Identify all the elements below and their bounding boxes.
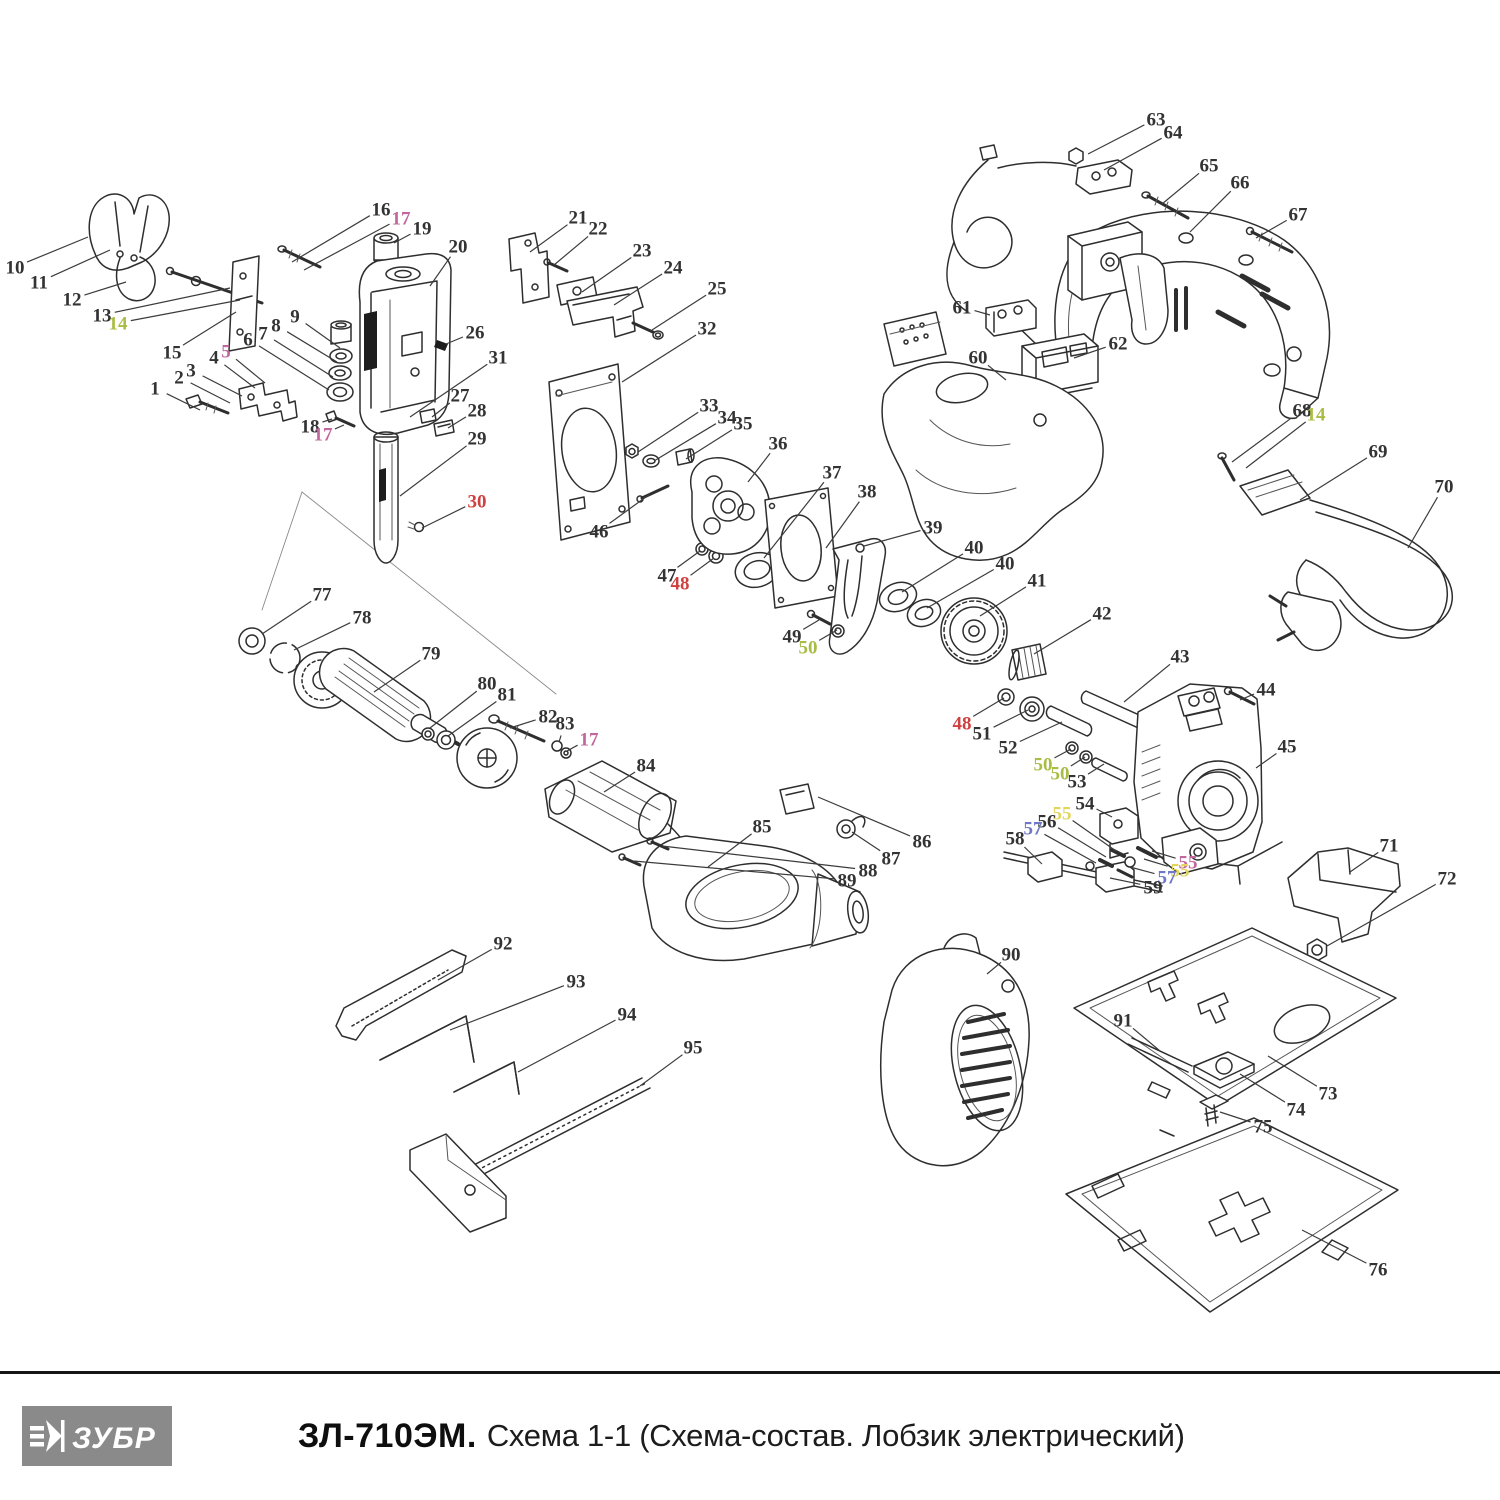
- part-label-71: 71: [1380, 836, 1399, 857]
- part-label-50: 50: [799, 638, 818, 659]
- leader-line-33: [638, 412, 698, 452]
- part-baffle-disc: [457, 728, 517, 788]
- footer-divider: [0, 1371, 1500, 1374]
- part-label-11: 11: [30, 273, 48, 294]
- leader-line-29: [400, 446, 467, 496]
- model-name: ЗЛ-710ЭМ.: [298, 1417, 477, 1456]
- zubr-logo-text: ЗУБР: [72, 1422, 156, 1455]
- part-gasket-32: [549, 364, 630, 540]
- leader-line-56: [1058, 828, 1106, 857]
- leader-line-47: [678, 551, 701, 567]
- leader-line-63: [1088, 125, 1144, 154]
- leader-line-69: [1300, 458, 1367, 500]
- part-label-16: 16: [372, 200, 391, 221]
- part-label-3: 3: [186, 361, 196, 382]
- part-label-23: 23: [633, 241, 652, 262]
- part-label-1: 1: [150, 379, 160, 400]
- part-connector-block: [884, 312, 946, 366]
- part-label-15: 15: [163, 343, 182, 364]
- part-label-14: 14: [1307, 405, 1327, 426]
- part-handle-66: [1055, 211, 1330, 418]
- leader-line-22: [554, 236, 588, 265]
- part-label-29: 29: [468, 429, 487, 450]
- part-label-2: 2: [174, 368, 184, 389]
- part-edge-guide-95: [410, 1078, 650, 1232]
- schema-title: ЗЛ-710ЭМ. Схема 1-1 (Схема-состав. Лобзи…: [298, 1406, 1185, 1466]
- part-label-8: 8: [271, 316, 281, 337]
- part-label-90: 90: [1002, 945, 1021, 966]
- part-label-44: 44: [1257, 680, 1277, 701]
- part-label-45: 45: [1278, 737, 1297, 758]
- part-screw-30: [408, 522, 424, 532]
- part-label-7: 7: [258, 324, 268, 345]
- leader-line-65: [1162, 173, 1199, 204]
- leader-line-35: [686, 430, 732, 459]
- part-label-88: 88: [859, 861, 878, 882]
- part-label-65: 65: [1200, 156, 1219, 177]
- leader-line-48: [691, 558, 715, 575]
- leader-line-17: [335, 425, 344, 429]
- part-pinion-42: [1007, 644, 1046, 681]
- part-label-5: 5: [221, 342, 231, 363]
- part-label-38: 38: [858, 482, 877, 503]
- part-label-81: 81: [498, 685, 517, 706]
- part-label-37: 37: [823, 463, 843, 484]
- part-label-48: 48: [671, 574, 690, 595]
- part-label-33: 33: [700, 396, 719, 417]
- part-label-92: 92: [494, 934, 513, 955]
- zubr-logo: ЗУБР: [22, 1406, 172, 1466]
- part-label-58: 58: [1006, 829, 1025, 850]
- exploded-parts-diagram: 1234567891011121314151617181719202122232…: [0, 0, 1500, 1372]
- part-label-48: 48: [953, 714, 972, 735]
- part-label-87: 87: [882, 849, 902, 870]
- leader-line-82: [510, 720, 536, 728]
- leader-line-48: [973, 698, 1004, 716]
- part-label-70: 70: [1435, 477, 1454, 498]
- part-label-89: 89: [838, 871, 857, 892]
- part-label-28: 28: [468, 401, 487, 422]
- leader-line-95: [640, 1055, 683, 1086]
- leader-line-42: [1034, 620, 1091, 654]
- part-label-76: 76: [1369, 1260, 1388, 1281]
- leader-line-30: [422, 507, 465, 528]
- part-label-74: 74: [1287, 1100, 1307, 1121]
- part-plunger-rod-29: [374, 432, 398, 563]
- leader-line-2: [191, 383, 230, 403]
- leader-line-32: [622, 335, 696, 382]
- part-label-46: 46: [590, 522, 609, 543]
- part-label-62: 62: [1109, 334, 1128, 355]
- part-support-71: [1288, 848, 1400, 961]
- leader-line-86: [818, 797, 910, 836]
- part-label-94: 94: [618, 1005, 638, 1026]
- part-label-75: 75: [1254, 1117, 1273, 1138]
- part-label-57: 57: [1024, 819, 1044, 840]
- leader-line-5: [236, 359, 265, 383]
- part-label-17: 17: [580, 730, 600, 751]
- zubr-logo-icon: ЗУБР: [24, 1410, 170, 1462]
- leader-line-83: [559, 735, 561, 742]
- part-label-17: 17: [392, 209, 412, 230]
- part-label-67: 67: [1289, 205, 1309, 226]
- leader-line-8: [287, 332, 337, 362]
- leader-line-52: [1020, 722, 1062, 742]
- part-bracket-21: [509, 233, 549, 303]
- leader-line-78: [294, 623, 350, 650]
- part-label-86: 86: [913, 832, 932, 853]
- leader-line-51: [994, 710, 1028, 727]
- part-gasket-38: [765, 488, 838, 608]
- part-label-24: 24: [664, 258, 684, 279]
- part-label-17: 17: [314, 425, 334, 446]
- part-nut-33: [626, 444, 694, 467]
- part-blade-holder: [89, 194, 169, 301]
- part-motor-housing-85: [643, 836, 870, 960]
- leader-line-49: [803, 620, 819, 629]
- part-label-64: 64: [1164, 123, 1184, 144]
- part-label-59: 59: [1144, 878, 1163, 899]
- part-counterweight-36: [691, 458, 770, 554]
- part-label-41: 41: [1028, 571, 1047, 592]
- part-label-9: 9: [290, 307, 300, 328]
- part-label-39: 39: [924, 518, 943, 539]
- part-label-25: 25: [708, 279, 727, 300]
- leader-line-77: [262, 601, 311, 634]
- leader-line-7: [274, 340, 333, 377]
- part-label-19: 19: [413, 219, 432, 240]
- part-label-60: 60: [969, 348, 988, 369]
- part-label-6: 6: [243, 330, 253, 351]
- part-label-83: 83: [556, 714, 575, 735]
- leader-line-70: [1408, 497, 1438, 548]
- part-terminal-61: [986, 300, 1036, 336]
- part-label-43: 43: [1171, 647, 1190, 668]
- leader-line-93: [450, 986, 564, 1030]
- leader-line-14: [131, 300, 240, 321]
- part-base-shoe-76: [1066, 1118, 1398, 1312]
- page: 1234567891011121314151617181719202122232…: [0, 0, 1500, 1500]
- part-label-10: 10: [6, 258, 25, 279]
- leader-line-87: [852, 832, 880, 851]
- part-label-91: 91: [1114, 1011, 1133, 1032]
- part-label-26: 26: [466, 323, 485, 344]
- part-label-84: 84: [637, 756, 657, 777]
- part-label-40: 40: [965, 538, 984, 559]
- part-label-79: 79: [422, 644, 441, 665]
- part-label-53: 53: [1068, 772, 1087, 793]
- part-label-22: 22: [589, 219, 608, 240]
- leader-line-15: [183, 312, 236, 345]
- part-label-80: 80: [478, 674, 497, 695]
- part-label-32: 32: [698, 319, 717, 340]
- part-label-95: 95: [684, 1038, 703, 1059]
- part-label-14: 14: [109, 314, 129, 335]
- part-label-66: 66: [1231, 173, 1250, 194]
- part-label-20: 20: [449, 237, 468, 258]
- part-label-51: 51: [973, 724, 992, 745]
- part-label-40: 40: [996, 554, 1015, 575]
- part-label-85: 85: [753, 817, 772, 838]
- leader-line-94: [518, 1020, 616, 1072]
- part-label-36: 36: [769, 434, 788, 455]
- part-label-73: 73: [1319, 1084, 1338, 1105]
- part-label-93: 93: [567, 972, 586, 993]
- part-label-52: 52: [999, 738, 1018, 759]
- part-label-35: 35: [734, 414, 753, 435]
- part-label-12: 12: [63, 290, 82, 311]
- leader-line-3: [203, 376, 242, 396]
- part-label-21: 21: [569, 208, 588, 229]
- leader-line-80: [430, 691, 477, 728]
- part-label-69: 69: [1369, 442, 1388, 463]
- part-gear-41: [941, 598, 1007, 664]
- part-hex-key-94: [454, 1062, 519, 1094]
- leader-line-75: [1220, 1112, 1251, 1122]
- part-cord-set: [1218, 453, 1452, 650]
- leader-line-23: [582, 258, 631, 293]
- part-label-42: 42: [1093, 604, 1112, 625]
- part-washer-stack: [327, 321, 353, 401]
- schema-subtitle: Схема 1-1 (Схема-состав. Лобзик электрич…: [487, 1418, 1185, 1454]
- leader-line-43: [1124, 664, 1170, 702]
- part-label-77: 77: [313, 585, 333, 606]
- leader-line-64: [1104, 138, 1162, 170]
- part-label-54: 54: [1076, 794, 1096, 815]
- part-label-4: 4: [209, 348, 219, 369]
- leader-line-4: [224, 365, 255, 388]
- part-label-78: 78: [353, 608, 372, 629]
- part-label-30: 30: [468, 492, 487, 513]
- part-hex-key-93: [380, 1016, 474, 1062]
- part-label-31: 31: [489, 348, 508, 369]
- part-label-72: 72: [1438, 869, 1457, 890]
- leader-line-10: [27, 237, 88, 262]
- leader-line-40: [902, 554, 963, 592]
- part-motor-cover-90: [881, 934, 1035, 1166]
- part-label-61: 61: [953, 298, 972, 319]
